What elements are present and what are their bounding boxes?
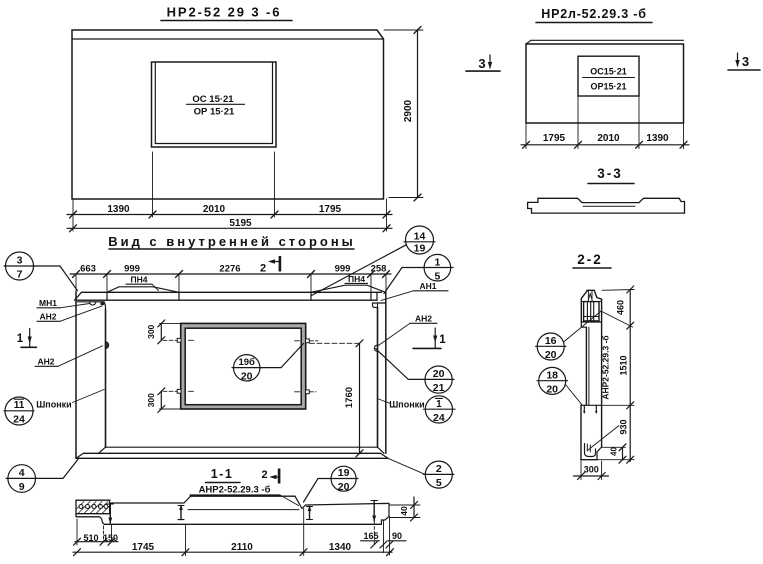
svg-text:1: 1 (439, 334, 446, 346)
svg-text:300: 300 (146, 324, 156, 338)
svg-text:2276: 2276 (219, 264, 240, 275)
svg-text:1760: 1760 (344, 387, 355, 408)
svg-text:2010: 2010 (203, 204, 226, 215)
svg-text:20: 20 (546, 383, 558, 395)
svg-text:НР2л-52.29.3 -б: НР2л-52.29.3 -б (541, 7, 646, 21)
svg-text:ОС15·21: ОС15·21 (590, 67, 627, 77)
svg-text:ОР15·21: ОР15·21 (590, 82, 626, 92)
svg-text:1-1: 1-1 (211, 467, 234, 481)
svg-text:1: 1 (436, 399, 442, 410)
svg-text:11: 11 (14, 400, 25, 411)
svg-text:930: 930 (619, 419, 629, 434)
svg-text:1745: 1745 (132, 542, 155, 553)
svg-text:АН2: АН2 (37, 357, 54, 367)
svg-text:ОС 15·21: ОС 15·21 (192, 94, 234, 105)
svg-text:16: 16 (545, 335, 557, 347)
svg-text:21: 21 (433, 382, 445, 394)
svg-text:АН2: АН2 (415, 314, 432, 324)
svg-text:3-3: 3-3 (597, 166, 623, 181)
svg-text:20: 20 (241, 371, 253, 383)
svg-text:300: 300 (584, 465, 599, 475)
svg-text:2: 2 (261, 469, 267, 481)
svg-text:1: 1 (17, 333, 24, 345)
svg-text:165: 165 (363, 531, 378, 541)
svg-text:Вид с внутренней стороны: Вид с внутренней стороны (108, 234, 356, 249)
svg-text:2900: 2900 (403, 99, 414, 122)
svg-text:1390: 1390 (646, 133, 669, 144)
svg-text:258: 258 (371, 264, 387, 275)
svg-text:20: 20 (433, 368, 445, 380)
svg-text:19: 19 (414, 243, 426, 255)
svg-text:24: 24 (13, 414, 25, 426)
svg-text:20: 20 (545, 349, 557, 361)
svg-text:20: 20 (338, 481, 350, 493)
svg-text:1340: 1340 (329, 542, 352, 553)
svg-text:24: 24 (433, 412, 445, 424)
svg-text:АНР2-52.29.3 -б: АНР2-52.29.3 -б (601, 335, 611, 399)
svg-text:ПН4: ПН4 (348, 274, 365, 284)
svg-text:2: 2 (260, 263, 266, 275)
svg-text:2010: 2010 (597, 133, 620, 144)
svg-text:2-2: 2-2 (577, 252, 603, 267)
svg-text:999: 999 (124, 264, 140, 275)
svg-text:18: 18 (546, 369, 558, 381)
svg-text:150: 150 (103, 533, 118, 543)
svg-text:40: 40 (610, 447, 619, 456)
svg-text:1510: 1510 (619, 355, 629, 375)
svg-text:АН2: АН2 (39, 312, 56, 322)
svg-text:МН1: МН1 (39, 298, 57, 308)
svg-text:4: 4 (19, 467, 25, 479)
svg-text:3: 3 (742, 54, 749, 69)
svg-text:Шпонки: Шпонки (389, 400, 424, 410)
svg-text:ПН4: ПН4 (131, 275, 148, 285)
svg-text:460: 460 (616, 300, 626, 315)
svg-text:3: 3 (478, 56, 485, 71)
svg-text:2110: 2110 (231, 542, 253, 553)
svg-text:Шпонки: Шпонки (36, 400, 71, 410)
svg-text:19б: 19б (238, 357, 255, 368)
svg-text:19: 19 (338, 467, 350, 479)
svg-text:7: 7 (17, 269, 23, 281)
svg-text:90: 90 (392, 531, 402, 541)
svg-text:1795: 1795 (543, 133, 566, 144)
svg-text:300: 300 (146, 393, 156, 407)
svg-text:АНР2-52.29.3 -б: АНР2-52.29.3 -б (199, 485, 271, 496)
svg-text:ОР 15·21: ОР 15·21 (194, 107, 235, 118)
svg-text:АН1: АН1 (419, 281, 436, 291)
svg-text:40: 40 (399, 506, 409, 516)
svg-text:1390: 1390 (107, 204, 130, 215)
svg-text:9: 9 (19, 481, 25, 493)
svg-text:2: 2 (436, 463, 442, 475)
svg-text:1: 1 (434, 257, 440, 269)
svg-text:5195: 5195 (229, 218, 252, 229)
svg-text:5: 5 (436, 477, 442, 489)
svg-text:3: 3 (17, 255, 23, 267)
svg-text:НР2-52 29 3 -6: НР2-52 29 3 -6 (167, 5, 282, 20)
svg-text:14: 14 (414, 231, 426, 243)
svg-text:1795: 1795 (319, 204, 342, 215)
svg-text:663: 663 (80, 264, 96, 275)
svg-text:510: 510 (83, 533, 98, 543)
